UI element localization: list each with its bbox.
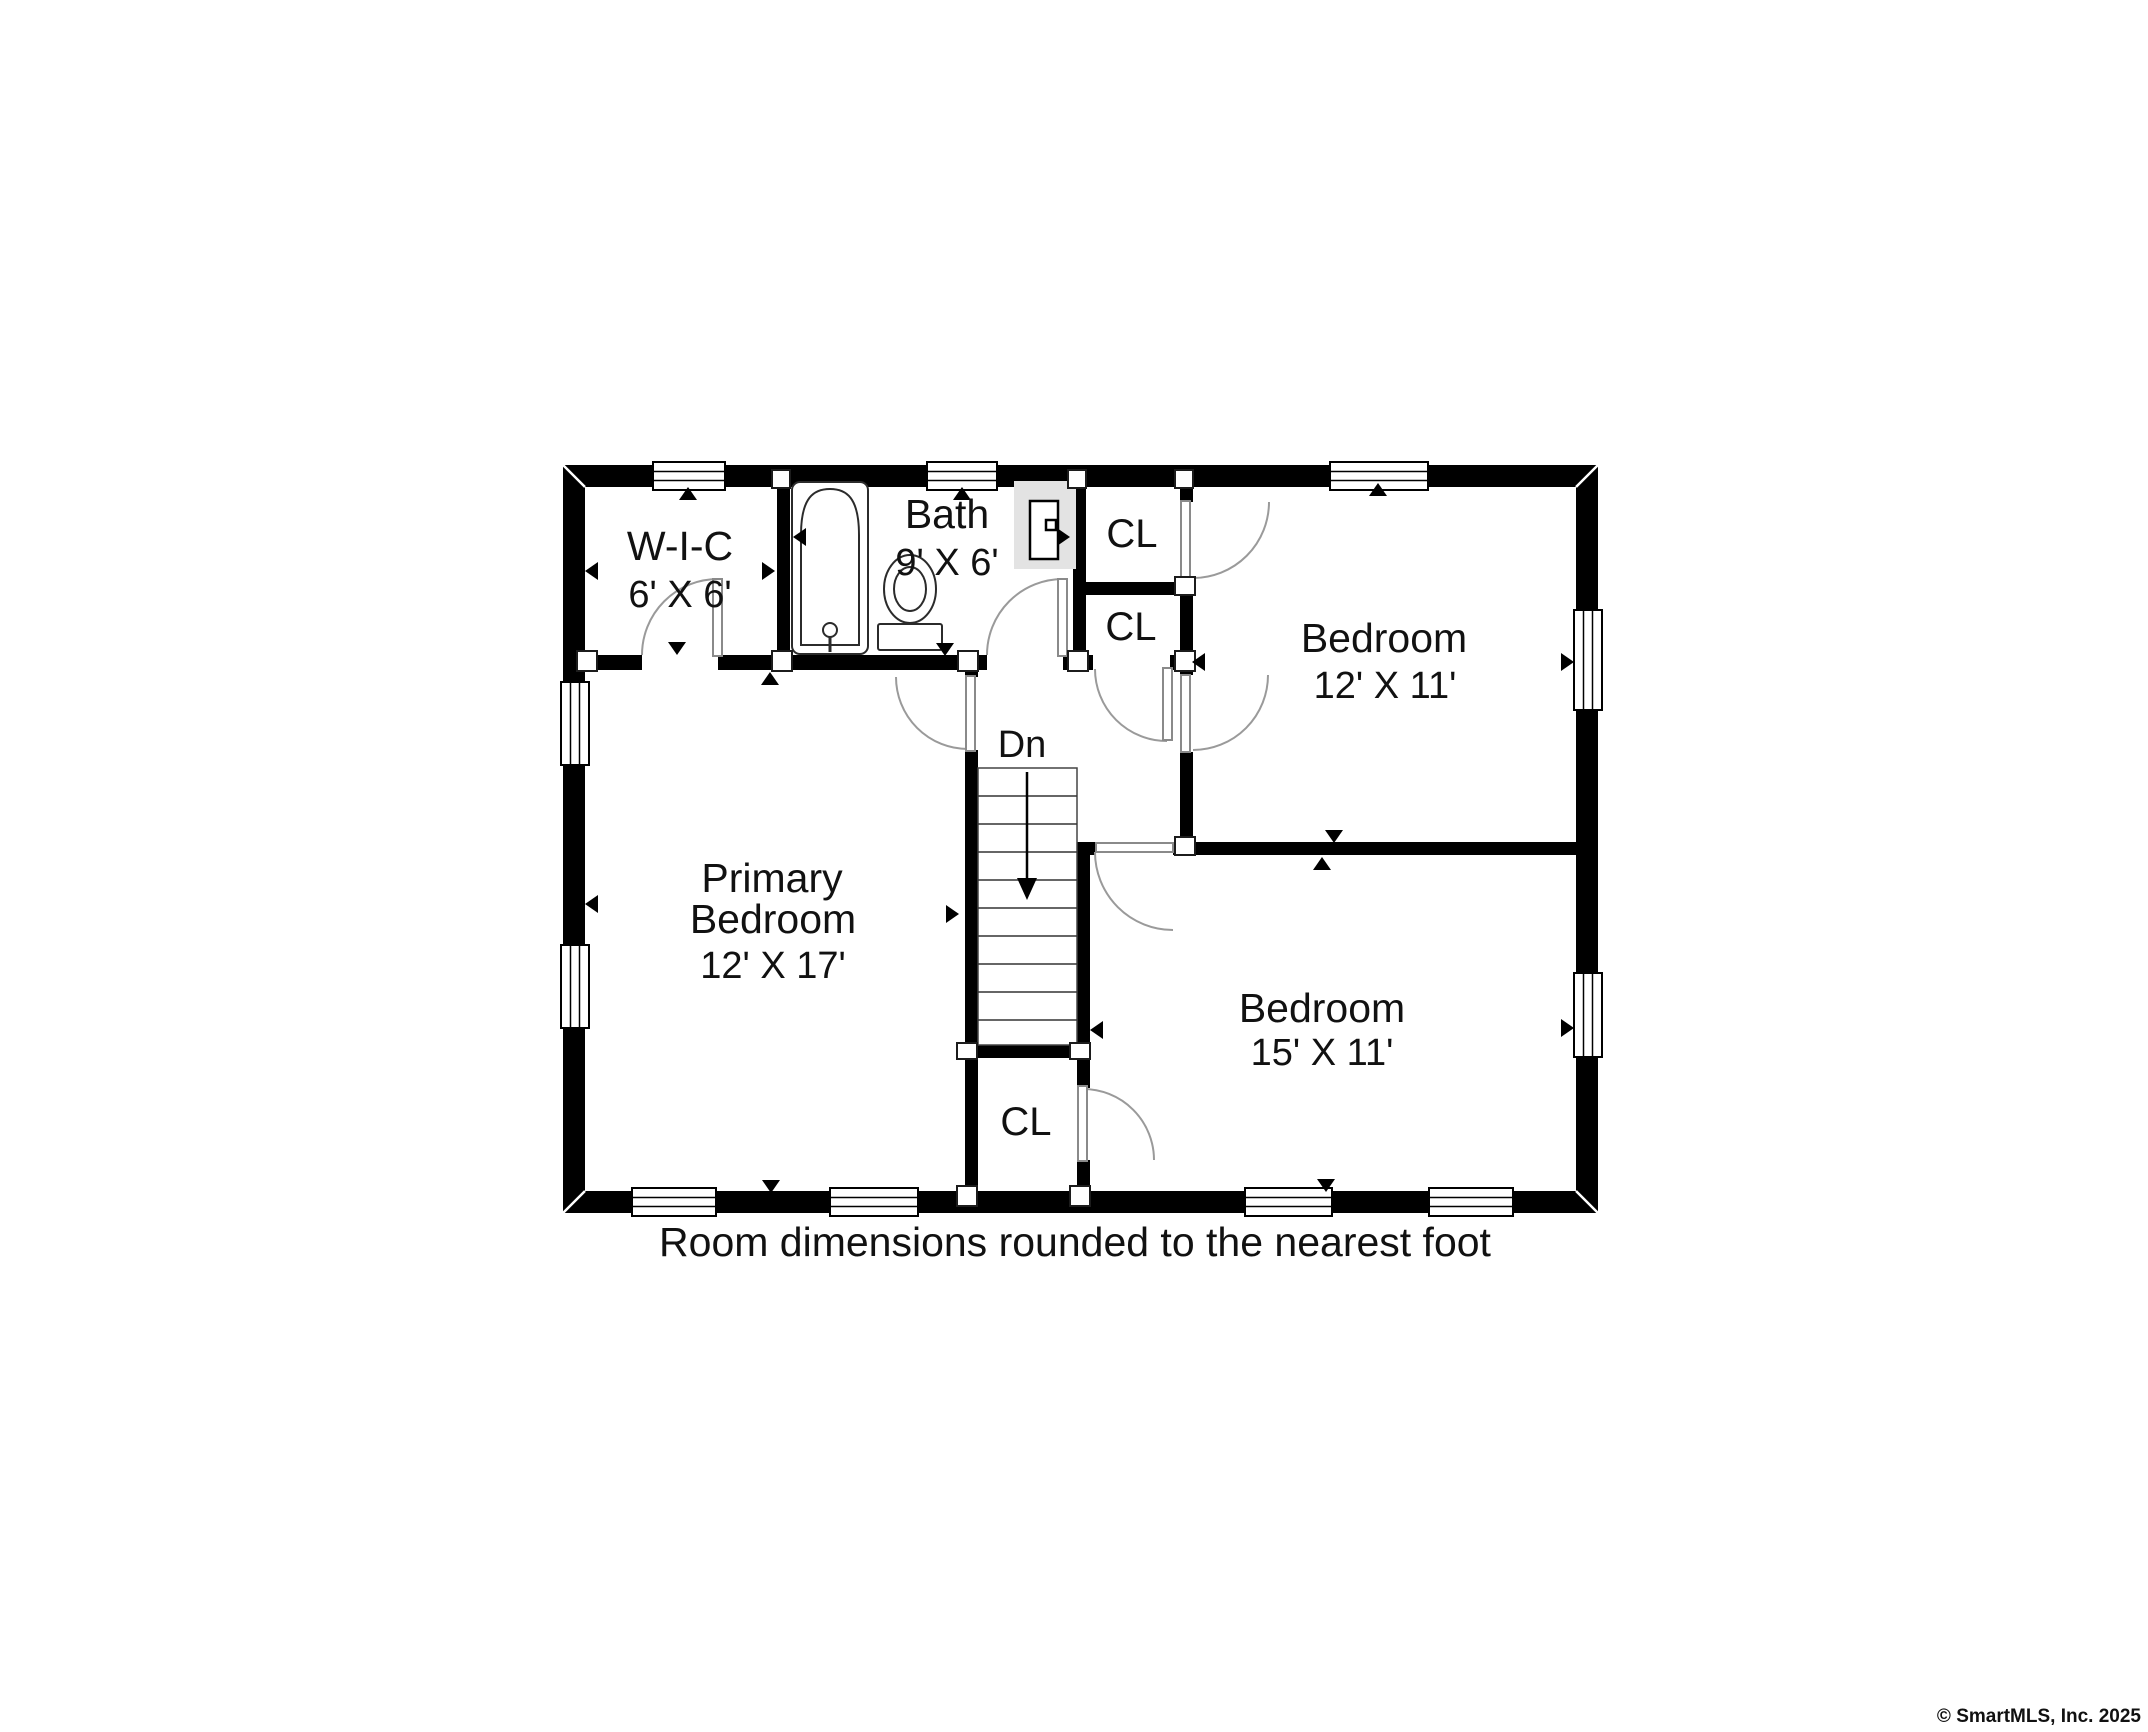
room-label-primary-line1: Primary [701, 855, 843, 901]
doors [642, 501, 1269, 1161]
copyright-watermark: © SmartMLS, Inc. 2025 [1937, 1706, 2142, 1727]
room-label-bath: Bath [905, 491, 989, 537]
vanity-sink-icon [1014, 481, 1076, 569]
room-dims-primary: 12' X 17' [700, 945, 846, 987]
room-label-bedroom-right: Bedroom [1301, 615, 1467, 661]
room-dims-bedroom-bottom: 15' X 11' [1251, 1032, 1394, 1074]
stairs-down-arrow [1017, 772, 1037, 900]
room-label-primary-line2: Bedroom [690, 896, 856, 942]
room-label-closet-under-stairs: CL [1000, 1100, 1051, 1144]
bathtub-icon [792, 482, 868, 654]
room-dims-wic: 6' X 6' [628, 574, 731, 616]
room-label-wic: W-I-C [627, 523, 733, 569]
window-bedroom-bottom-right [1429, 1188, 1513, 1216]
floor-plan-canvas: W-I-C 6' X 6' Bath 9' X 6' CL CL Bedroom… [0, 0, 2148, 1732]
interior-walls [585, 487, 1598, 1192]
room-label-closet-mid: CL [1105, 605, 1156, 649]
window-bath-top [927, 462, 997, 490]
stairs-label: Dn [998, 724, 1047, 766]
window-primary-bottom-left [632, 1188, 716, 1216]
window-wic-top [653, 462, 725, 490]
floor-plan-page: W-I-C 6' X 6' Bath 9' X 6' CL CL Bedroom… [0, 0, 2148, 1732]
caption: Room dimensions rounded to the nearest f… [659, 1219, 1492, 1265]
door-bedroom-bottom [1095, 843, 1173, 930]
window-primary-left-lower [561, 945, 589, 1028]
window-primary-bottom-right [830, 1188, 918, 1216]
door-bath [987, 579, 1067, 656]
window-bedroom-bottom-left [1245, 1188, 1332, 1216]
stairs [978, 768, 1077, 1045]
room-dims-bedroom-right: 12' X 11' [1314, 665, 1457, 707]
room-label-bedroom-bottom: Bedroom [1239, 985, 1405, 1031]
door-closet-mid [1095, 668, 1172, 741]
room-dims-bath: 9' X 6' [895, 542, 998, 584]
window-primary-left-upper [561, 682, 589, 765]
window-bedroom-bottom-east [1574, 973, 1602, 1057]
window-bedroom-right-east [1574, 610, 1602, 710]
room-label-closet-top: CL [1106, 512, 1157, 556]
